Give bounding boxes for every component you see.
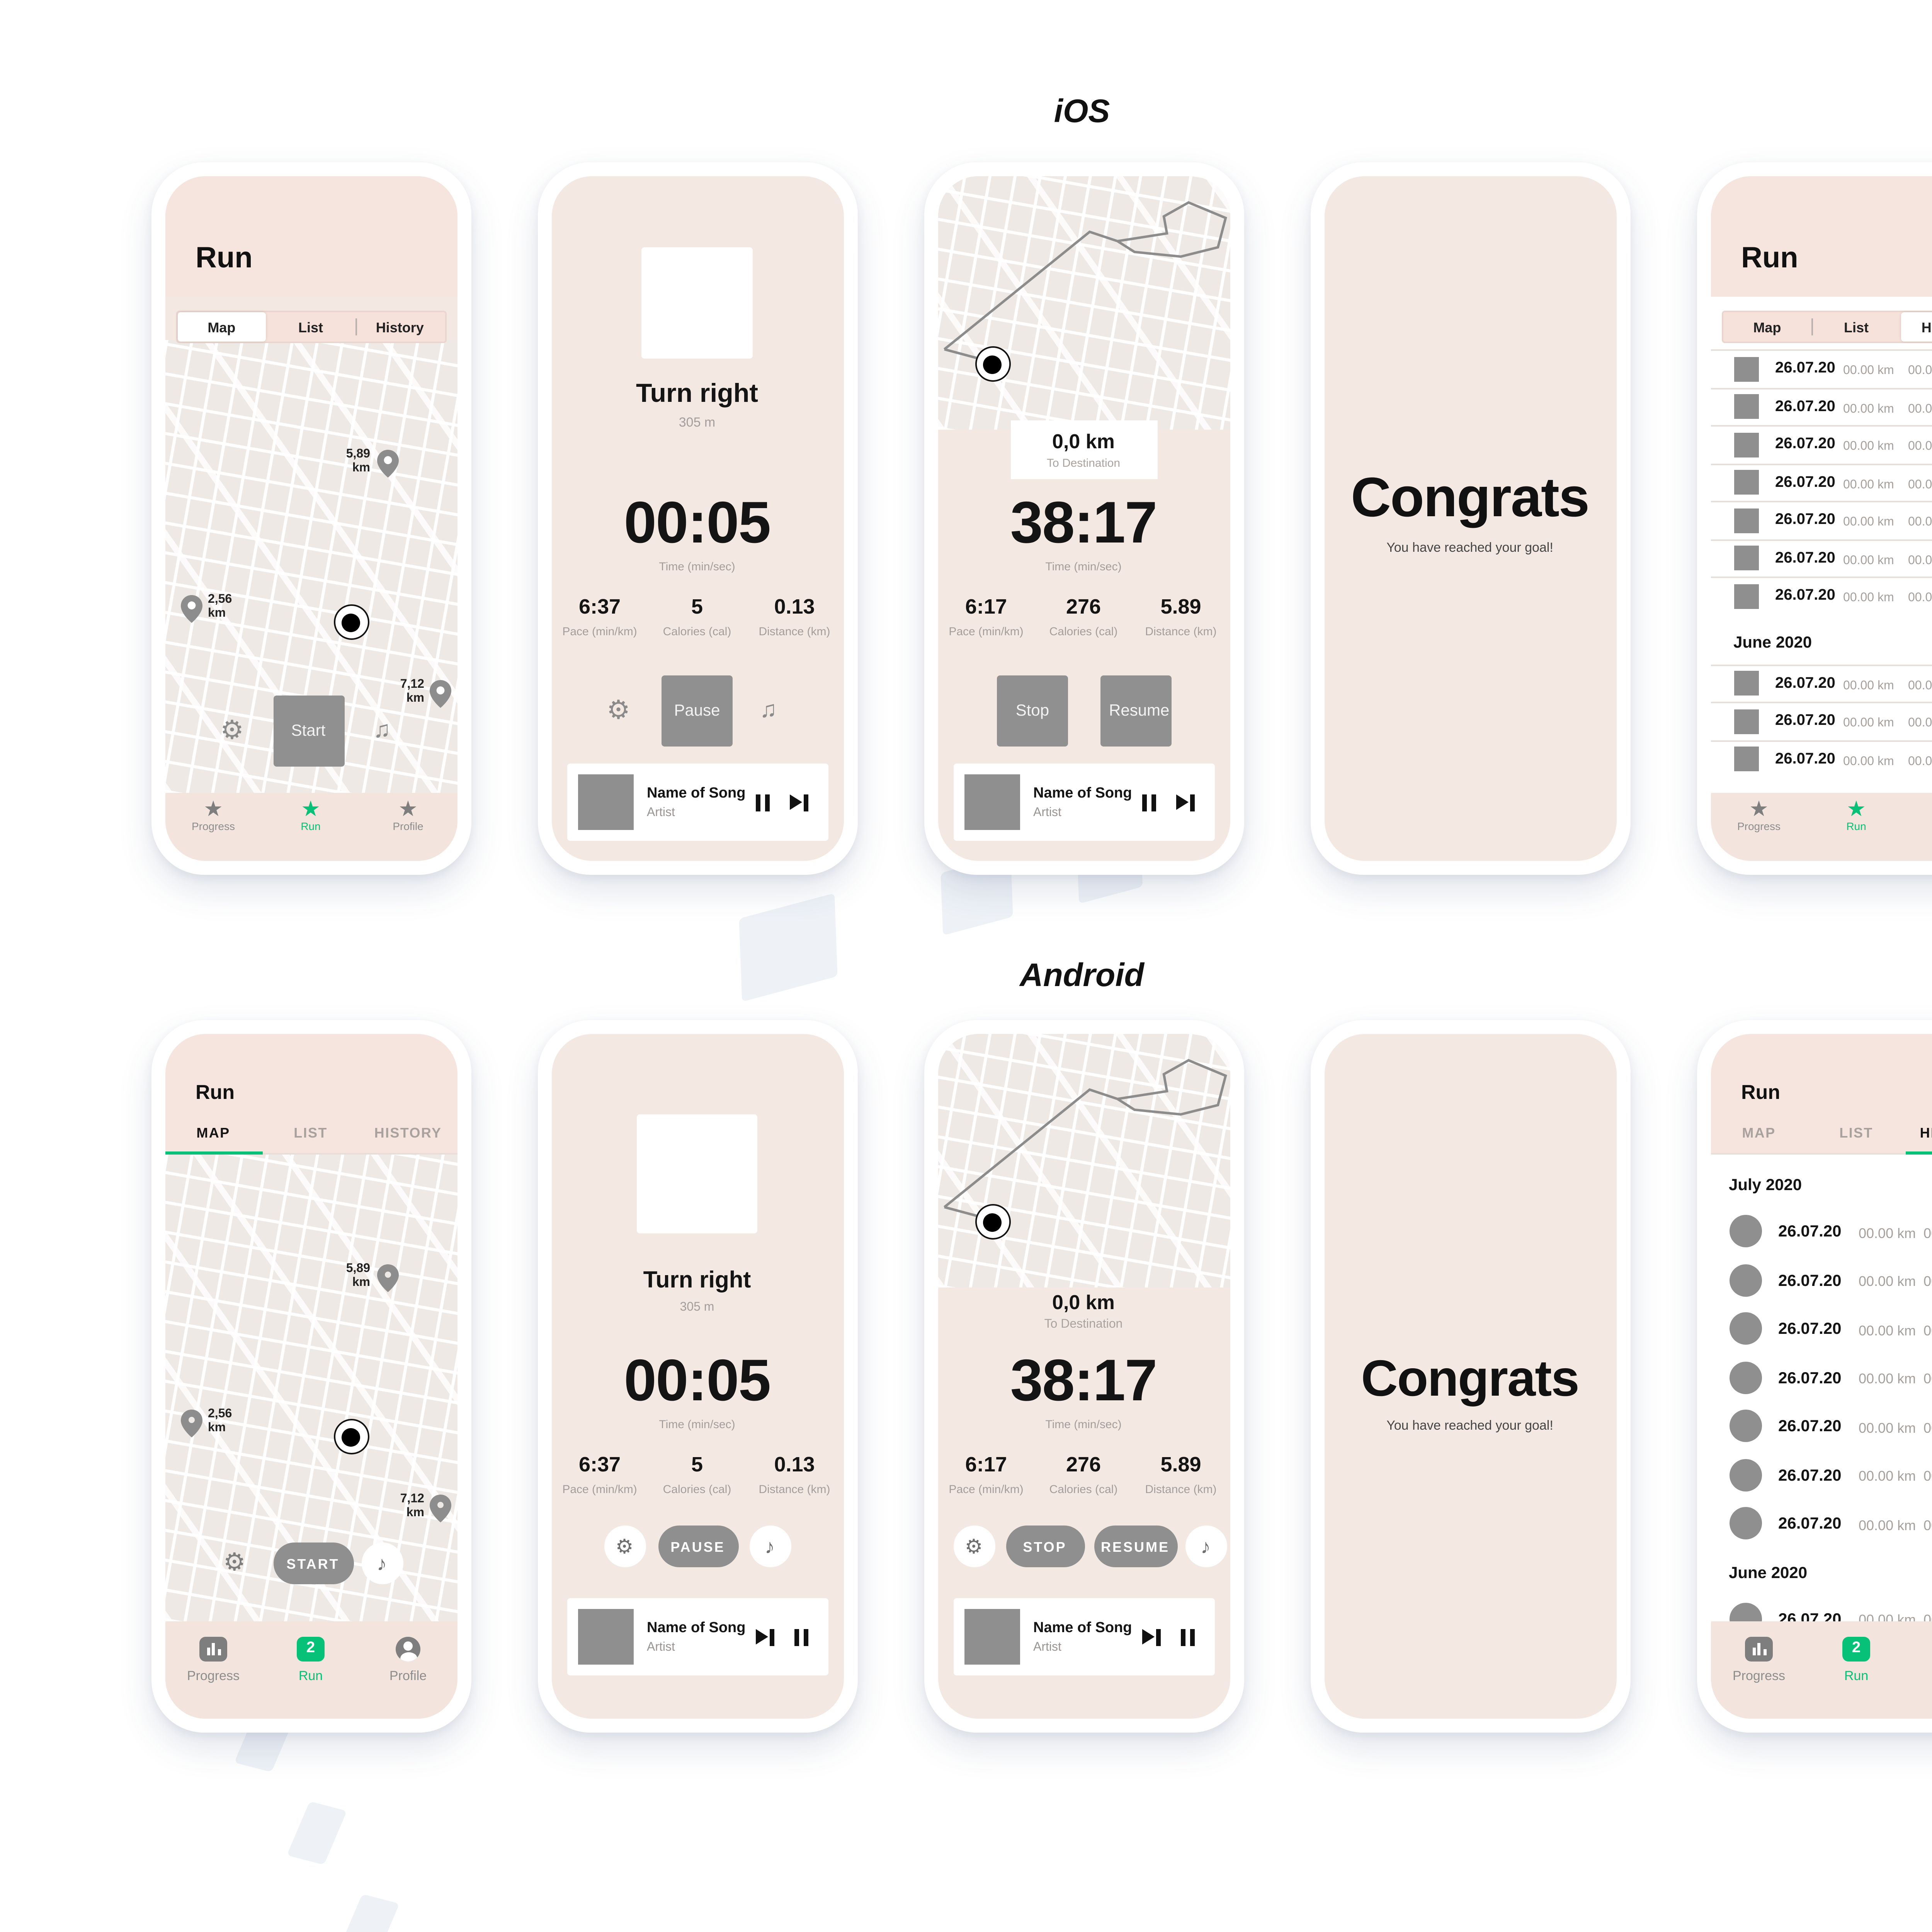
resume-button[interactable]: RESUME bbox=[1094, 1526, 1177, 1567]
pace-label: Pace (min/km) bbox=[937, 1481, 1035, 1495]
to-destination-label: To Destination bbox=[937, 1317, 1230, 1331]
decor-dash bbox=[739, 893, 837, 1002]
distance-value: 0.13 bbox=[746, 1454, 843, 1475]
history-duration: 00.00 min bbox=[1923, 1468, 1932, 1484]
route-map[interactable] bbox=[937, 1034, 1230, 1287]
tab-list[interactable]: LIST bbox=[1808, 1111, 1905, 1155]
pause-icon[interactable] bbox=[1142, 794, 1156, 811]
time-label: Time (min/sec) bbox=[551, 1417, 843, 1431]
map-pin-label: 5,89km bbox=[327, 447, 370, 475]
music-note-icon: ♪ bbox=[377, 1553, 387, 1573]
history-distance: 00.00 km bbox=[1859, 1517, 1916, 1532]
history-date: 26.07.20 bbox=[1778, 1515, 1842, 1533]
history-duration: 00.00 min bbox=[1908, 716, 1932, 730]
tab-bar: Map List History bbox=[1721, 311, 1932, 343]
history-row[interactable]: 26.07.2000.00 km00.00 min› bbox=[1710, 1402, 1932, 1451]
phone-android-history: Run MAP LIST HISTORY July 2020 26.07.200… bbox=[1696, 1020, 1932, 1733]
phone-android-map: Run MAP LIST HISTORY 5,89km 2,56km 7,12k… bbox=[151, 1020, 471, 1733]
history-distance: 00.00 km bbox=[1843, 678, 1894, 692]
history-duration: 00.00 min bbox=[1923, 1420, 1932, 1435]
history-date: 26.07.20 bbox=[1778, 1610, 1842, 1621]
run-thumbnail bbox=[1733, 356, 1758, 381]
history-row[interactable]: 26.07.2000.00 km00.00 min› bbox=[1710, 1499, 1932, 1548]
skip-next-icon[interactable] bbox=[790, 794, 808, 811]
music-button[interactable]: ♪ bbox=[1185, 1526, 1226, 1567]
history-duration: 00.00 min bbox=[1908, 477, 1932, 491]
history-duration: 00.00 min bbox=[1908, 439, 1932, 453]
to-destination: 0,0 km To Destination bbox=[937, 1291, 1230, 1331]
history-distance: 00.00 km bbox=[1843, 716, 1894, 730]
history-distance: 00.00 km bbox=[1843, 515, 1894, 529]
tab-history[interactable]: History bbox=[1901, 312, 1932, 342]
nav-progress[interactable]: ★ Progress bbox=[165, 793, 262, 861]
skip-next-icon[interactable] bbox=[1176, 794, 1194, 811]
history-duration: 00.00 min bbox=[1923, 1371, 1932, 1386]
history-distance: 00.00 km bbox=[1843, 401, 1894, 415]
run-star-icon: ★ bbox=[1808, 798, 1905, 819]
map-pin-label: 5,89km bbox=[327, 1261, 370, 1290]
history-row[interactable]: 26.07.2000.00 km00.00 min› bbox=[1710, 577, 1932, 614]
app-header bbox=[1710, 176, 1932, 297]
profile-star-icon: ★ bbox=[359, 798, 457, 819]
phone-ios-run: 0,0 km To Destination 38:17 Time (min/se… bbox=[923, 162, 1243, 875]
progress-chart-icon bbox=[199, 1637, 227, 1662]
tab-bar: MAP LIST HISTORY bbox=[1710, 1111, 1932, 1155]
calories-value: 5 bbox=[648, 597, 746, 617]
history-duration: 00.00 min bbox=[1923, 1274, 1932, 1289]
skip-next-icon[interactable] bbox=[756, 1628, 774, 1645]
current-location-icon bbox=[333, 604, 369, 640]
history-duration: 00.00 min bbox=[1908, 553, 1932, 566]
music-button[interactable]: ♪ bbox=[749, 1526, 791, 1567]
profile-star-icon: ★ bbox=[1905, 798, 1932, 819]
distance-label: Distance (km) bbox=[746, 624, 843, 638]
elapsed-time: 38:17 bbox=[937, 495, 1230, 553]
pace-label: Pace (min/km) bbox=[551, 1481, 648, 1495]
pace-value: 6:17 bbox=[937, 597, 1035, 617]
settings-gear-icon: ⚙ bbox=[616, 1536, 634, 1556]
tab-list[interactable]: List bbox=[1812, 312, 1901, 342]
history-row[interactable]: 26.07.2000.00 km00.00 min› bbox=[1710, 1256, 1932, 1304]
map-pin-icon[interactable] bbox=[376, 1264, 398, 1292]
music-player: Name of Song Artist bbox=[953, 764, 1214, 841]
album-art bbox=[964, 1609, 1019, 1665]
tab-history[interactable]: History bbox=[355, 312, 444, 342]
run-thumbnail bbox=[1733, 432, 1758, 457]
pace-label: Pace (min/km) bbox=[551, 624, 648, 638]
history-row[interactable]: 26.07.2000.00 km00.00 min› bbox=[1710, 1353, 1932, 1402]
album-art bbox=[964, 774, 1019, 830]
history-date: 26.07.20 bbox=[1778, 1369, 1842, 1387]
history-list: July 2020 26.07.2000.00 km00.00 min› 26.… bbox=[1710, 1155, 1932, 1621]
time-label: Time (min/sec) bbox=[937, 560, 1230, 573]
elapsed-time: 38:17 bbox=[937, 1352, 1230, 1411]
tab-list[interactable]: LIST bbox=[262, 1111, 359, 1155]
stats-row: 6:37 Pace (min/km) 5 Calories (cal) 0.13… bbox=[551, 597, 843, 638]
music-note-icon[interactable]: ♫ bbox=[373, 719, 391, 742]
tab-bar: MAP LIST HISTORY bbox=[165, 1111, 457, 1155]
progress-star-icon: ★ bbox=[165, 798, 262, 819]
history-list: July 2020 26.07.2000.00 km00.00 min› 26.… bbox=[1710, 297, 1932, 793]
profile-person-icon bbox=[396, 1637, 420, 1662]
ios-section-label: iOS bbox=[927, 94, 1236, 131]
song-artist: Artist bbox=[647, 1640, 746, 1654]
settings-gear-icon[interactable]: ⚙ bbox=[223, 1552, 245, 1577]
time-label: Time (min/sec) bbox=[551, 560, 843, 573]
history-row[interactable]: 26.07.2000.00 km00.00 min› bbox=[1710, 702, 1932, 740]
run-thumbnail bbox=[1729, 1507, 1761, 1539]
history-row[interactable]: 26.07.2000.00 km00.00 min› bbox=[1710, 463, 1932, 501]
history-distance: 00.00 km bbox=[1859, 1420, 1916, 1435]
pace-label: Pace (min/km) bbox=[937, 624, 1035, 638]
nav-run[interactable]: ★ Run bbox=[1808, 793, 1905, 861]
song-artist: Artist bbox=[1033, 805, 1132, 819]
history-duration: 00.00 min bbox=[1923, 1612, 1932, 1621]
settings-gear-icon[interactable]: ⚙ bbox=[607, 697, 630, 723]
phone-ios-map: Run Map List History 5,89km 2,56km 7,12k… bbox=[151, 162, 471, 875]
map-pin-label: 2,56km bbox=[208, 1406, 232, 1435]
nav-profile[interactable]: ★ Profile bbox=[359, 793, 457, 861]
history-distance: 00.00 km bbox=[1843, 753, 1894, 767]
pause-icon[interactable] bbox=[794, 1628, 808, 1645]
pause-button[interactable]: Pause bbox=[662, 675, 733, 747]
distance-label: Distance (km) bbox=[746, 1481, 843, 1495]
stats-row: 6:17 Pace (min/km) 276 Calories (cal) 5.… bbox=[937, 597, 1230, 638]
run-thumbnail bbox=[1733, 709, 1758, 733]
history-date: 26.07.20 bbox=[1775, 713, 1835, 730]
history-row[interactable]: 26.07.2000.00 km00.00 min› bbox=[1710, 1304, 1932, 1353]
album-art bbox=[577, 1609, 633, 1665]
history-date: 26.07.20 bbox=[1775, 512, 1835, 529]
active-tab-underline bbox=[165, 1151, 262, 1155]
history-duration: 00.00 min bbox=[1923, 1225, 1932, 1240]
history-distance: 00.00 km bbox=[1859, 1468, 1916, 1484]
run-thumbnail bbox=[1733, 394, 1758, 419]
map-pin-icon[interactable] bbox=[376, 450, 398, 478]
design-canvas: iOS Android Run Map List History 5,89km … bbox=[0, 0, 1932, 1932]
history-row[interactable]: 26.07.2000.00 km00.00 min› bbox=[1710, 539, 1932, 577]
distance-value: 5.89 bbox=[1132, 597, 1230, 617]
history-row[interactable]: 26.07.2000.00 km00.00 min› bbox=[1710, 740, 1932, 777]
history-distance: 00.00 km bbox=[1843, 363, 1894, 377]
map-pin-icon[interactable] bbox=[180, 1410, 202, 1437]
to-destination-value: 0,0 km bbox=[1010, 430, 1157, 453]
history-distance: 00.00 km bbox=[1859, 1225, 1916, 1240]
time-label: Time (min/sec) bbox=[937, 1417, 1230, 1431]
phone-android-turn: Turn right 305 m 00:05 Time (min/sec) 6:… bbox=[537, 1020, 857, 1733]
turn-arrow-placeholder bbox=[637, 1114, 757, 1233]
pace-value: 6:37 bbox=[551, 597, 648, 617]
history-date: 26.07.20 bbox=[1775, 398, 1835, 415]
tab-map[interactable]: MAP bbox=[165, 1111, 262, 1155]
map-pin-label: 7,12km bbox=[381, 1492, 424, 1520]
music-player: Name of Song Artist bbox=[953, 1598, 1214, 1675]
route-path bbox=[937, 176, 1230, 430]
history-distance: 00.00 km bbox=[1859, 1612, 1916, 1621]
tab-bar: Map List History bbox=[175, 311, 446, 343]
run-star-icon: ★ bbox=[262, 798, 359, 819]
history-date: 26.07.20 bbox=[1775, 474, 1835, 491]
history-distance: 00.00 km bbox=[1843, 477, 1894, 491]
song-title: Name of Song bbox=[1033, 785, 1132, 802]
history-row[interactable]: 26.07.2000.00 km00.00 min› bbox=[1710, 664, 1932, 702]
calories-label: Calories (cal) bbox=[648, 1481, 746, 1495]
history-duration: 00.00 min bbox=[1908, 401, 1932, 415]
run-thumbnail bbox=[1733, 508, 1758, 532]
run-tile-icon: 2 bbox=[1842, 1637, 1870, 1662]
phone-android-run: 0,0 km To Destination 38:17 Time (min/se… bbox=[923, 1020, 1243, 1733]
distance-value: 5.89 bbox=[1132, 1454, 1230, 1475]
history-date: 26.07.20 bbox=[1775, 549, 1835, 566]
start-button[interactable]: START bbox=[273, 1543, 353, 1584]
decor-dash bbox=[339, 1894, 400, 1932]
run-thumbnail bbox=[1729, 1458, 1761, 1491]
tab-map[interactable]: Map bbox=[177, 312, 266, 342]
run-thumbnail bbox=[1733, 747, 1758, 771]
history-duration: 00.00 min bbox=[1908, 515, 1932, 529]
stop-button[interactable]: Stop bbox=[997, 675, 1068, 747]
calories-value: 5 bbox=[648, 1454, 746, 1475]
history-duration: 00.00 min bbox=[1908, 363, 1932, 377]
decor-dash bbox=[287, 1801, 347, 1865]
nav-run[interactable]: 2 Run bbox=[262, 1621, 359, 1719]
map-pin-icon[interactable] bbox=[429, 1495, 451, 1522]
run-thumbnail bbox=[1729, 1361, 1761, 1393]
phone-ios-history: Run July 2020 26.07.2000.00 km00.00 min›… bbox=[1696, 162, 1932, 875]
distance-label: Distance (km) bbox=[1132, 624, 1230, 638]
history-distance: 00.00 km bbox=[1859, 1322, 1916, 1338]
turn-arrow-placeholder bbox=[641, 247, 753, 359]
tab-list[interactable]: List bbox=[266, 312, 355, 342]
progress-chart-icon bbox=[1745, 1637, 1773, 1662]
run-thumbnail bbox=[1733, 546, 1758, 570]
history-date: 26.07.20 bbox=[1775, 587, 1835, 604]
history-row[interactable]: 26.07.2000.00 km00.00 min› bbox=[1710, 425, 1932, 463]
run-tile-icon: 2 bbox=[297, 1637, 325, 1662]
song-artist: Artist bbox=[1033, 1640, 1132, 1654]
history-distance: 00.00 km bbox=[1859, 1274, 1916, 1289]
music-note-icon: ♪ bbox=[1201, 1536, 1211, 1556]
nav-progress[interactable]: ★ Progress bbox=[1710, 793, 1808, 861]
map-pin-icon[interactable] bbox=[429, 680, 451, 708]
history-duration: 00.00 min bbox=[1908, 590, 1932, 604]
bottom-nav: Progress 2 Run Profile bbox=[165, 1621, 457, 1719]
tab-map[interactable]: Map bbox=[1723, 312, 1812, 342]
history-row[interactable]: 26.07.2000.00 km00.00 min› bbox=[1710, 1451, 1932, 1499]
nav-run[interactable]: 2 Run bbox=[1808, 1621, 1905, 1719]
bottom-nav: Progress 2 Run Profile bbox=[1710, 1621, 1932, 1719]
pause-button[interactable]: PAUSE bbox=[658, 1526, 738, 1567]
congrats-subtitle: You have reached your goal! bbox=[1324, 539, 1616, 555]
page-title: Run bbox=[196, 244, 253, 274]
history-distance: 00.00 km bbox=[1859, 1371, 1916, 1386]
nav-profile[interactable]: Profile bbox=[359, 1621, 457, 1719]
map-pin-icon[interactable] bbox=[180, 595, 202, 623]
phone-ios-turn: Turn right 305 m 00:05 Time (min/sec) 6:… bbox=[537, 162, 857, 875]
run-thumbnail bbox=[1733, 583, 1758, 608]
distance-label: Distance (km) bbox=[1132, 1481, 1230, 1495]
history-date: 26.07.20 bbox=[1775, 750, 1835, 767]
to-destination-card: 0,0 km To Destination bbox=[1010, 420, 1157, 479]
history-row[interactable]: 26.07.2000.00 km00.00 min› bbox=[1710, 387, 1932, 425]
current-location-icon bbox=[333, 1419, 369, 1454]
music-note-icon: ♪ bbox=[765, 1536, 775, 1556]
history-duration: 00.00 min bbox=[1923, 1322, 1932, 1338]
history-row[interactable]: 26.07.2000.00 km00.00 min› bbox=[1710, 501, 1932, 539]
tab-divider bbox=[1811, 318, 1813, 335]
song-title: Name of Song bbox=[1033, 1620, 1132, 1637]
settings-gear-icon[interactable]: ⚙ bbox=[220, 717, 244, 743]
history-duration: 00.00 min bbox=[1908, 753, 1932, 767]
pause-icon[interactable] bbox=[756, 794, 770, 811]
nav-profile[interactable]: ★ Profile bbox=[1905, 793, 1932, 861]
skip-next-icon[interactable] bbox=[1142, 1628, 1160, 1645]
history-distance: 00.00 km bbox=[1843, 439, 1894, 453]
stats-row: 6:37 Pace (min/km) 5 Calories (cal) 0.13… bbox=[551, 1454, 843, 1495]
month-header: June 2020 bbox=[1733, 633, 1932, 651]
run-thumbnail bbox=[1729, 1602, 1761, 1621]
turn-distance: 305 m bbox=[551, 414, 843, 430]
phone-ios-congrats: Congrats You have reached your goal! bbox=[1310, 162, 1630, 875]
history-date: 26.07.20 bbox=[1778, 1223, 1842, 1241]
page-title: Run bbox=[1741, 244, 1798, 274]
song-artist: Artist bbox=[647, 805, 746, 819]
song-title: Name of Song bbox=[647, 1620, 746, 1637]
map-pin-label: 7,12km bbox=[381, 677, 424, 706]
history-row[interactable]: 26.07.2000.00 km00.00 min› bbox=[1710, 349, 1932, 387]
history-distance: 00.00 km bbox=[1843, 553, 1894, 566]
bottom-nav: ★ Progress ★ Run ★ Profile bbox=[1710, 793, 1932, 861]
nav-progress[interactable]: Progress bbox=[1710, 1621, 1808, 1719]
music-player: Name of Song Artist bbox=[566, 1598, 828, 1675]
android-section-label: Android bbox=[927, 958, 1236, 995]
active-tab-underline bbox=[1905, 1151, 1932, 1155]
history-date: 26.07.20 bbox=[1775, 675, 1835, 692]
month-header: June 2020 bbox=[1729, 1563, 1932, 1582]
distance-value: 0.13 bbox=[746, 597, 843, 617]
history-distance: 00.00 km bbox=[1843, 590, 1894, 604]
route-map[interactable] bbox=[937, 176, 1230, 430]
history-date: 26.07.20 bbox=[1778, 1417, 1842, 1436]
history-duration: 00.00 min bbox=[1908, 678, 1932, 692]
run-thumbnail bbox=[1729, 1312, 1761, 1345]
tab-map[interactable]: MAP bbox=[1710, 1111, 1808, 1155]
album-art bbox=[577, 774, 633, 830]
to-destination-label: To Destination bbox=[1010, 456, 1157, 470]
history-date: 26.07.20 bbox=[1778, 1271, 1842, 1290]
pace-value: 6:37 bbox=[551, 1454, 648, 1475]
turn-distance: 305 m bbox=[551, 1300, 843, 1314]
stop-button[interactable]: STOP bbox=[1005, 1526, 1084, 1567]
tab-history[interactable]: HISTORY bbox=[359, 1111, 457, 1155]
tab-divider bbox=[355, 318, 357, 335]
history-row[interactable]: 26.07.2000.00 km00.00 min› bbox=[1710, 1207, 1932, 1256]
calories-label: Calories (cal) bbox=[648, 624, 746, 638]
congrats-title: Congrats bbox=[1324, 470, 1616, 526]
route-path bbox=[937, 1034, 1230, 1287]
music-note-icon[interactable]: ♫ bbox=[760, 699, 777, 722]
to-destination-value: 0,0 km bbox=[937, 1291, 1230, 1314]
calories-label: Calories (cal) bbox=[1035, 1481, 1132, 1495]
month-header: July 2020 bbox=[1729, 1176, 1932, 1195]
elapsed-time: 00:05 bbox=[551, 495, 843, 553]
run-thumbnail bbox=[1733, 671, 1758, 696]
run-thumbnail bbox=[1729, 1410, 1761, 1442]
app-header bbox=[165, 176, 457, 297]
tab-history[interactable]: HISTORY bbox=[1905, 1111, 1932, 1155]
history-date: 26.07.20 bbox=[1778, 1320, 1842, 1338]
bottom-nav: ★ Progress ★ Run ★ Profile bbox=[165, 793, 457, 861]
history-date: 26.07.20 bbox=[1775, 360, 1835, 377]
settings-button[interactable]: ⚙ bbox=[604, 1526, 645, 1567]
map-pin-label: 2,56km bbox=[208, 592, 232, 621]
resume-button[interactable]: Resume bbox=[1100, 675, 1171, 747]
nav-progress[interactable]: Progress bbox=[165, 1621, 262, 1719]
music-player: Name of Song Artist bbox=[566, 764, 828, 841]
song-title: Name of Song bbox=[647, 785, 746, 802]
turn-instruction: Turn right bbox=[551, 1269, 843, 1292]
elapsed-time: 00:05 bbox=[551, 1352, 843, 1411]
history-date: 26.07.20 bbox=[1778, 1466, 1842, 1485]
history-row[interactable]: 26.07.2000.00 km00.00 min› bbox=[1710, 1594, 1932, 1621]
pace-value: 6:17 bbox=[937, 1454, 1035, 1475]
congrats-subtitle: You have reached your goal! bbox=[1324, 1417, 1616, 1433]
settings-button[interactable]: ⚙ bbox=[953, 1526, 995, 1567]
start-button[interactable]: Start bbox=[273, 696, 344, 767]
history-duration: 00.00 min bbox=[1923, 1517, 1932, 1532]
run-thumbnail bbox=[1733, 470, 1758, 495]
calories-value: 276 bbox=[1035, 1454, 1132, 1475]
nav-run[interactable]: ★ Run bbox=[262, 793, 359, 861]
stats-row: 6:17 Pace (min/km) 276 Calories (cal) 5.… bbox=[937, 1454, 1230, 1495]
page-title: Run bbox=[1741, 1082, 1780, 1102]
congrats-title: Congrats bbox=[1324, 1352, 1616, 1403]
pause-icon[interactable] bbox=[1180, 1628, 1194, 1645]
turn-instruction: Turn right bbox=[551, 380, 843, 406]
page-title: Run bbox=[196, 1082, 235, 1102]
run-thumbnail bbox=[1729, 1264, 1761, 1296]
calories-value: 276 bbox=[1035, 597, 1132, 617]
history-date: 26.07.20 bbox=[1775, 436, 1835, 453]
calories-label: Calories (cal) bbox=[1035, 624, 1132, 638]
nav-profile[interactable]: Profile bbox=[1905, 1621, 1932, 1719]
progress-star-icon: ★ bbox=[1710, 798, 1808, 819]
settings-gear-icon: ⚙ bbox=[965, 1536, 983, 1556]
phone-android-congrats: Congrats You have reached your goal! bbox=[1310, 1020, 1630, 1733]
run-thumbnail bbox=[1729, 1215, 1761, 1247]
